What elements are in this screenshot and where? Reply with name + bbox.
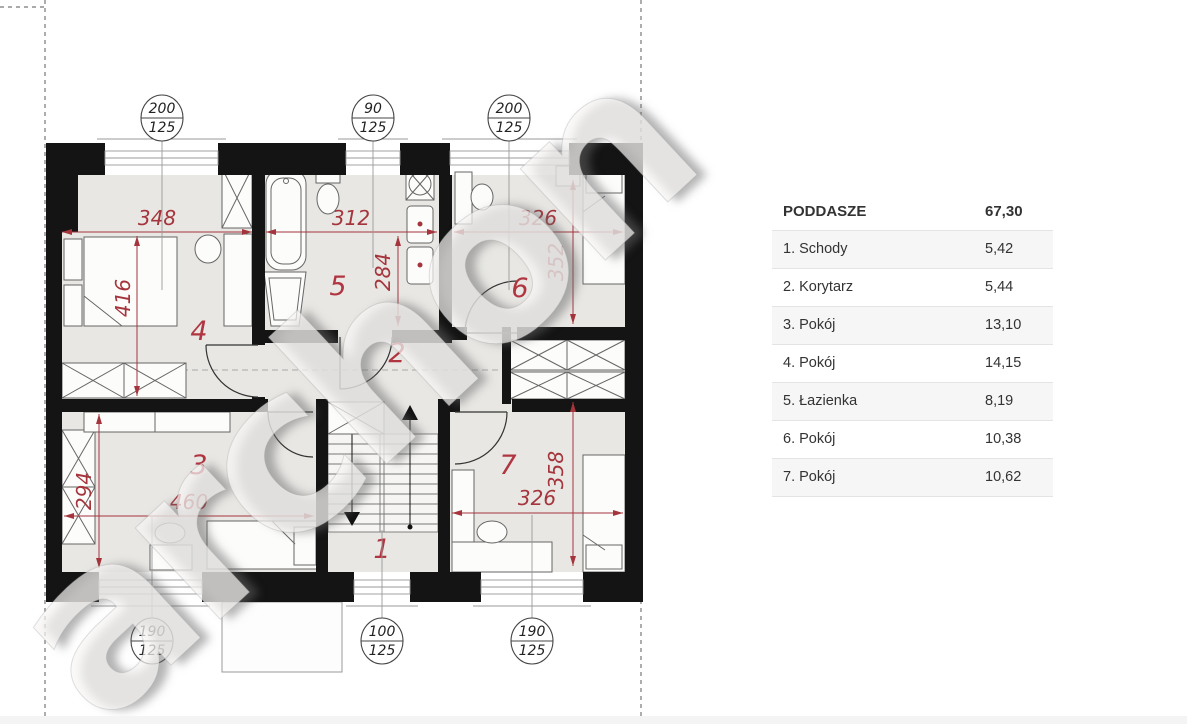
svg-text:312: 312 [332, 206, 370, 230]
desk-symbol [224, 234, 252, 326]
nightstand-symbol [64, 239, 82, 280]
cabinet-symbol [84, 412, 230, 432]
room-label-3: 3 [190, 450, 207, 481]
svg-text:348: 348 [138, 206, 176, 230]
room-label-4: 4 [190, 316, 207, 347]
room-label-2: 2 [388, 338, 405, 369]
window-tag: 100 125 [361, 618, 403, 664]
window-tag: 90 125 [352, 95, 394, 141]
legend-header: PODDASZE 67,30 [772, 193, 1053, 231]
window-tag: 190 125 [511, 618, 553, 664]
legend-row: 2. Korytarz 5,44 [772, 269, 1053, 307]
window-tag: 190 125 [131, 618, 173, 664]
svg-text:326: 326 [519, 206, 557, 230]
chair-symbol [195, 235, 221, 263]
legend-row: 6. Pokój 10,38 [772, 421, 1053, 459]
svg-text:358: 358 [544, 451, 568, 489]
shower-symbol [264, 272, 306, 326]
svg-text:190: 190 [139, 624, 166, 640]
legend-row: 1. Schody 5,42 [772, 231, 1053, 269]
desk-symbol [455, 172, 472, 224]
bottom-band [0, 716, 1187, 724]
svg-text:416: 416 [111, 279, 135, 317]
svg-text:125: 125 [149, 120, 176, 136]
room-label-7: 7 [499, 450, 516, 481]
toilet-symbol [316, 174, 340, 183]
svg-text:460: 460 [170, 490, 208, 514]
svg-text:294: 294 [72, 472, 96, 510]
floor-plan-page: 348 416 312 284 [0, 0, 1187, 724]
floor-plan: 348 416 312 284 [0, 0, 760, 724]
svg-text:200: 200 [149, 101, 176, 117]
legend-table: PODDASZE 67,30 1. Schody 5,42 2. Korytar… [772, 193, 1053, 497]
svg-text:352: 352 [544, 243, 568, 281]
dormer-outline [222, 602, 342, 672]
chair-symbol [471, 184, 493, 210]
legend-row: 3. Pokój 13,10 [772, 307, 1053, 345]
window-tag: 200 125 [488, 95, 530, 141]
chair-symbol [477, 521, 507, 543]
room-label-5: 5 [329, 271, 346, 302]
svg-text:125: 125 [496, 120, 523, 136]
svg-text:90: 90 [364, 101, 382, 117]
nightstand-symbol [64, 285, 82, 326]
svg-text:125: 125 [369, 643, 396, 659]
desk-symbol [452, 470, 474, 542]
legend-row: 4. Pokój 14,15 [772, 345, 1053, 383]
svg-text:284: 284 [371, 253, 395, 291]
chair-symbol [155, 523, 185, 543]
desk-symbol [150, 545, 192, 570]
legend-row: 5. Łazienka 8,19 [772, 383, 1053, 421]
window-tag: 200 125 [141, 95, 183, 141]
svg-text:125: 125 [519, 643, 546, 659]
svg-text:200: 200 [496, 101, 523, 117]
svg-text:125: 125 [139, 643, 166, 659]
svg-text:125: 125 [360, 120, 387, 136]
floor-name: PODDASZE [783, 203, 866, 220]
room-label-6: 6 [511, 273, 528, 304]
floor-total-area: 67,30 [985, 203, 1023, 220]
svg-text:190: 190 [519, 624, 546, 640]
legend-row: 7. Pokój 10,62 [772, 459, 1053, 497]
svg-text:100: 100 [369, 624, 396, 640]
desk-symbol [452, 542, 552, 572]
